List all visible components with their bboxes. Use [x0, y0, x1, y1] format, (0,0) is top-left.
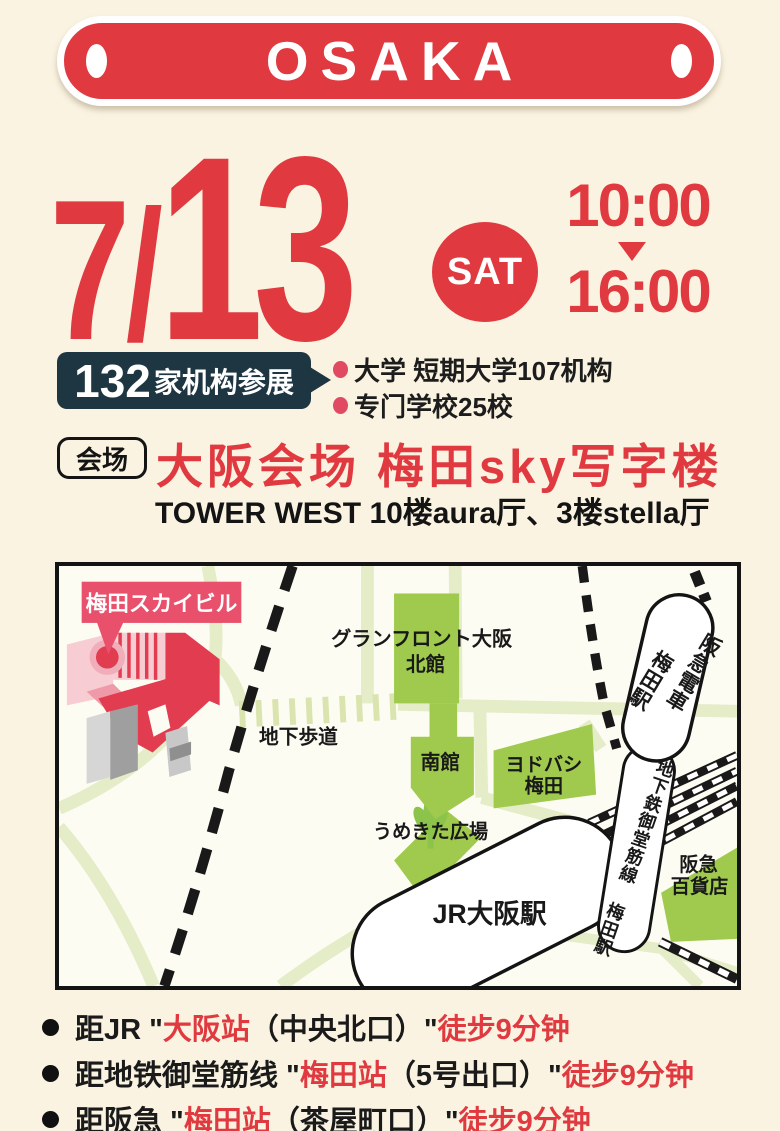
- underpass-label: 地下歩道: [259, 726, 338, 749]
- access-station: 梅田站: [184, 1098, 271, 1131]
- screw-hole-left-icon: [86, 44, 107, 78]
- access-walk-time: 徒步9分钟: [459, 1098, 591, 1131]
- stat-label: 专门学校25校: [354, 387, 513, 424]
- exhibitor-count: 132: [74, 358, 151, 404]
- event-date: 7 / 13: [50, 118, 352, 380]
- bullet-icon: [333, 361, 348, 378]
- access-map-svg: JR大阪駅 地下鉄御堂筋線 梅田駅 阪急電車 梅田駅: [59, 566, 737, 986]
- north-bldg-label: 北館: [406, 653, 445, 676]
- time-start: 10:00: [542, 176, 734, 236]
- badge-arrow-icon: [310, 367, 331, 393]
- access-exit: （5号出口）": [387, 1052, 562, 1094]
- banner-title: OSAKA: [254, 29, 525, 93]
- access-station: 梅田站: [300, 1052, 387, 1094]
- access-station: 大阪站: [163, 1006, 250, 1048]
- screw-hole-right-icon: [671, 44, 692, 78]
- bullet-icon: [42, 1111, 59, 1128]
- gray-building: [110, 704, 138, 780]
- exhibitor-count-suffix: 家机构参展: [154, 361, 294, 401]
- time-end: 16:00: [542, 262, 734, 322]
- exhibitor-count-badge: 132 家机构参展: [57, 352, 311, 409]
- access-walk-time: 徒步9分钟: [438, 1006, 570, 1048]
- access-map: JR大阪駅 地下鉄御堂筋線 梅田駅 阪急電車 梅田駅: [55, 562, 741, 990]
- list-item: 专门学校25校: [333, 387, 613, 423]
- grand-front-label: グランフロント大阪: [331, 627, 513, 651]
- yodobashi-label-2: 梅田: [525, 775, 563, 798]
- access-exit: （茶屋町口）": [271, 1098, 459, 1131]
- weekday-label: SAT: [447, 251, 523, 294]
- yodobashi-label-1: ヨドバシ: [505, 754, 582, 776]
- umekita-label: うめきた広場: [373, 820, 488, 843]
- jr-osaka-label: JR大阪駅: [433, 899, 547, 929]
- access-lead: 距JR ": [75, 1006, 163, 1048]
- venue-title: 大阪会场 梅田sky写字楼: [156, 428, 722, 497]
- gray-building: [87, 711, 111, 784]
- date-day: 13: [158, 118, 348, 380]
- venue-subtitle: TOWER WEST 10楼aura厅、3楼stella厅: [155, 488, 710, 532]
- hankyu-dept-label-2: 百貨店: [671, 875, 729, 898]
- access-row: 距阪急 "梅田站（茶屋町口）" 徒步9分钟: [42, 1096, 694, 1131]
- weekday-badge: SAT: [432, 222, 538, 322]
- bullet-icon: [42, 1065, 59, 1082]
- grandfront-connector: [430, 703, 458, 738]
- south-bldg-label: 南館: [421, 751, 460, 774]
- stat-label: 大学 短期大学107机构: [354, 351, 613, 388]
- osaka-banner: OSAKA: [57, 16, 721, 106]
- access-lead: 距阪急 ": [75, 1098, 184, 1131]
- date-slash: /: [126, 184, 163, 369]
- access-list: 距JR "大阪站（中央北口）" 徒步9分钟 距地铁御堂筋线 "梅田站（5号出口）…: [42, 1004, 694, 1131]
- exhibitor-breakdown-list: 大学 短期大学107机构 专门学校25校: [333, 351, 613, 423]
- access-row: 距JR "大阪站（中央北口）" 徒步9分钟: [42, 1004, 694, 1050]
- date-month: 7: [50, 171, 130, 371]
- list-item: 大学 短期大学107机构: [333, 351, 613, 387]
- flyer-page: OSAKA 7 / 13 SAT 10:00 16:00 132 家机构参展 大…: [0, 0, 780, 1131]
- bullet-icon: [42, 1019, 59, 1036]
- venue-badge: 会场: [57, 437, 147, 479]
- access-walk-time: 徒步9分钟: [562, 1052, 694, 1094]
- access-exit: （中央北口）": [250, 1006, 438, 1048]
- access-row: 距地铁御堂筋线 "梅田站（5号出口）" 徒步9分钟: [42, 1050, 694, 1096]
- hankyu-dept-label-1: 阪急: [679, 853, 717, 876]
- access-lead: 距地铁御堂筋线 ": [75, 1052, 300, 1094]
- sky-building-label: 梅田スカイビル: [86, 591, 238, 616]
- bullet-icon: [333, 397, 348, 414]
